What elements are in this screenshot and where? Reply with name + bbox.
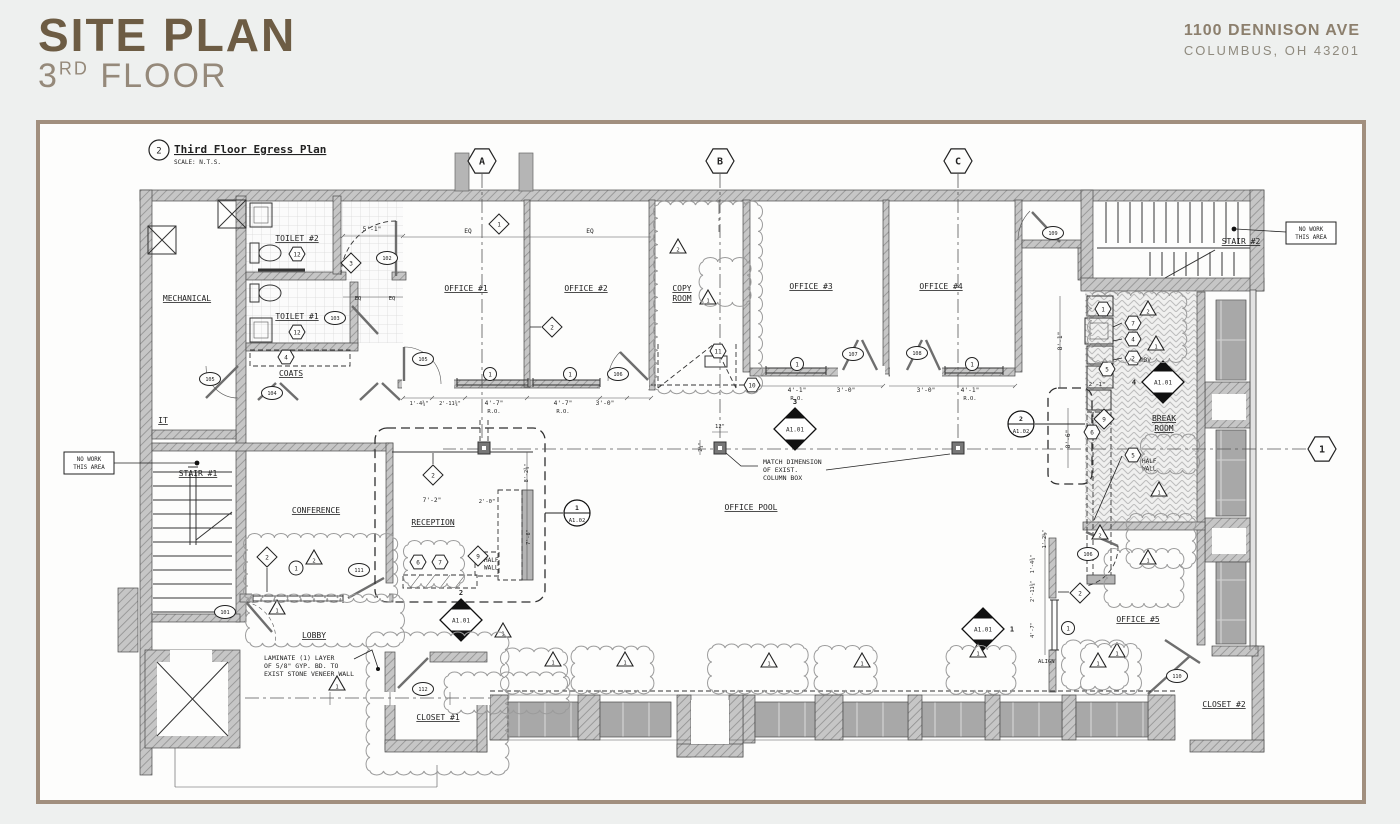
window-tag-number: 1 (795, 361, 799, 368)
keynote-number: 5 (1131, 453, 1135, 460)
room-label: BREAK (1152, 414, 1176, 423)
titleblock-number: 2 (156, 147, 161, 157)
dimension-text: R.O. (963, 396, 976, 402)
dimension-text: 2'-0" (479, 499, 496, 505)
section-marker-number: 4 (1132, 379, 1136, 387)
door-tag-number: 112 (418, 687, 427, 693)
revision-cloud (500, 648, 567, 694)
keynote-number: 6 (416, 560, 420, 567)
column-box-center (718, 446, 722, 450)
revision-number: 1 (1146, 559, 1149, 565)
revision-number: 1 (1154, 345, 1157, 351)
section-marker-sheet: A1.01 (786, 427, 804, 434)
revision-number: 1 (275, 609, 278, 615)
dimension-text: 4'-7" (1030, 622, 1036, 638)
keynote-number: 4 (284, 355, 288, 362)
door-tag-number: 107 (848, 352, 857, 358)
room-label: STAIR #2 (1222, 237, 1261, 246)
column-box-center (956, 446, 960, 450)
address-line2: COLUMBUS, OH 43201 (1184, 43, 1360, 58)
dimension-text: 8'-2¾" (524, 464, 530, 483)
room-label: OFFICE #4 (919, 282, 963, 291)
dimension-text: 7'-6" (526, 529, 532, 545)
revision-number: 1 (1157, 491, 1160, 497)
revision-number: 2 (676, 248, 679, 254)
room-label: COPY (672, 284, 691, 293)
keynote-number: 9 (1102, 417, 1106, 424)
keynote-number: 1 (294, 566, 298, 573)
revision-number: 1 (1115, 652, 1118, 658)
leader-line (726, 453, 758, 466)
keynote-number: 7 (438, 560, 442, 567)
dimension-text: R.O. (487, 409, 500, 415)
keynote-number: 12 (293, 330, 301, 337)
room-label: TOILET #2 (275, 234, 319, 243)
keynote-number: 7 (1131, 321, 1135, 328)
revision-number: 1 (860, 662, 863, 668)
address-line1: 1100 DENNISON AVE (1184, 22, 1360, 40)
column-box-center (482, 446, 486, 450)
dimension-text: 3'-0" (596, 400, 615, 407)
sheet-header: SITE PLAN 3RD FLOOR (38, 12, 296, 95)
leader-dot (195, 461, 200, 466)
detail-marker-sheet: A1.02 (1013, 429, 1030, 435)
room-label: ROOM (672, 294, 691, 303)
dimension-text: 1'-4¾" (410, 401, 429, 407)
drawing-panel: 2Third Floor Egress PlanSCALE: N.T.S.MEC… (36, 120, 1366, 804)
revision-number: 1 (551, 661, 554, 667)
revision-cloud (814, 646, 877, 695)
revision-number: 1 (335, 685, 338, 691)
note-text: OF 5/8" GYP. BD. TO (264, 662, 338, 670)
keynote-number: 4 (1131, 337, 1135, 344)
section-marker-sheet: A1.01 (1154, 380, 1172, 387)
sheet-title: SITE PLAN (38, 12, 296, 58)
dimension-text: 2'-1" (1089, 382, 1106, 388)
room-label: MECHANICAL (163, 294, 211, 303)
detail-marker-number: 2 (1019, 415, 1023, 423)
no-work-text: NO WORK (77, 457, 102, 463)
section-marker-sheet: A1.01 (974, 627, 992, 634)
door-tag-number: 109 (1048, 231, 1057, 237)
dimension-text: EQ (389, 296, 396, 302)
dimension-text: 2¼" (698, 442, 704, 451)
note-text: EXIST STONE VENEER WALL (264, 670, 354, 678)
revision-number: 2 (1098, 534, 1101, 540)
grid-marker-label: B (717, 157, 723, 168)
note-text: WALL (484, 565, 499, 572)
dimension-text: 1'-4¾" (1030, 555, 1036, 574)
dimension-text: 8'-1" (1057, 332, 1064, 351)
room-label: OFFICE #2 (564, 284, 608, 293)
door-tag-number: 101 (220, 610, 229, 616)
room-label: RECEPTION (411, 518, 455, 527)
keynote-number: 3 (349, 261, 353, 268)
no-work-text: THIS AREA (1295, 235, 1327, 241)
section-marker-arrow (785, 440, 806, 451)
dimension-text: 2'-11¾" (1030, 580, 1036, 602)
window-tag-number: 1 (1066, 625, 1070, 632)
door-tag-number: 103 (330, 316, 339, 322)
section-marker-arrow (451, 599, 472, 610)
note-text: ALIGN (1038, 659, 1055, 665)
no-work-text: THIS AREA (73, 465, 105, 471)
dimension-text: 4'-1" (788, 387, 807, 394)
revision-number: 1 (976, 652, 979, 658)
door-tag-number: 106 (613, 372, 622, 378)
dimension-text: 1'-2½" (1041, 530, 1048, 549)
door-tag-number: 102 (382, 256, 391, 262)
note-text: OF EXIST. (763, 466, 798, 474)
room-label: OFFICE #1 (444, 284, 488, 293)
dimension-text: R.O. (556, 409, 569, 415)
dimension-text: 4'-7" (554, 400, 573, 407)
revision-cloud (571, 646, 654, 694)
dimension-text: 7'-2" (423, 497, 442, 504)
door-tag-number: 110 (1172, 674, 1181, 680)
dimension-text: 2'-11¾" (439, 401, 461, 407)
leader-dot (1232, 227, 1237, 232)
leader-line (826, 454, 950, 470)
room-label: TOILET #1 (275, 312, 319, 321)
window-tag-number: 1 (568, 371, 572, 378)
revision-cloud (1081, 644, 1142, 695)
keynote-number: 2 (265, 555, 269, 562)
note-text: WALL (1142, 466, 1157, 473)
note-text: HALF (1142, 458, 1157, 465)
detail-marker-sheet: A1.02 (569, 518, 586, 524)
room-label: STAIR #1 (179, 469, 218, 478)
revision-number: 1 (623, 661, 626, 667)
room-label: CLOSET #1 (416, 713, 460, 722)
note-text: LAMINATE (1) LAYER (264, 654, 335, 662)
titleblock-title: Third Floor Egress Plan (174, 143, 326, 156)
room-label: COATS (279, 369, 303, 378)
revision-number: 1 (1096, 662, 1099, 668)
door-tag-number: 111 (354, 568, 363, 574)
room-label: CONFERENCE (292, 506, 340, 515)
section-marker-number: 1 (1010, 626, 1014, 634)
keynote-number: 5 (1105, 367, 1109, 374)
revision-number: 2 (312, 559, 315, 565)
door-tag-number: 105 (418, 357, 427, 363)
grid-marker-label: 1 (1319, 445, 1325, 456)
floor-plan-svg: 2Third Floor Egress PlanSCALE: N.T.S.MEC… (40, 124, 1362, 800)
dimension-text: EQ (355, 296, 362, 302)
keynote-number: 1 (497, 222, 501, 229)
room-label: OFFICE #5 (1116, 615, 1160, 624)
dimension-text: EQ (586, 228, 594, 235)
revision-number: 1 (767, 662, 770, 668)
revision-number: 1 (706, 299, 709, 305)
keynote-number: 11 (714, 349, 722, 356)
keynote-number: 12 (293, 252, 301, 259)
room-label: LOBBY (302, 631, 326, 640)
section-marker-arrow (973, 608, 994, 619)
leader-dot (376, 667, 380, 671)
keynote-number: 9 (476, 554, 480, 561)
room-label: OFFICE #3 (789, 282, 833, 291)
note-text: COLUMN BOX (763, 474, 802, 482)
project-address: 1100 DENNISON AVE COLUMBUS, OH 43201 (1184, 22, 1360, 58)
revision-number: 2 (1146, 310, 1149, 316)
door-tag-number: 108 (912, 351, 921, 357)
keynote-number: 10 (748, 383, 756, 390)
keynote-number: 1 (1101, 307, 1105, 314)
room-label: IT (158, 416, 168, 425)
door-tag-number: 104 (267, 391, 276, 397)
grid-marker-label: C (955, 157, 961, 168)
window-tag-number: 1 (970, 361, 974, 368)
note-text: MATCH DIMENSION (763, 458, 822, 466)
no-work-text: NO WORK (1299, 227, 1324, 233)
dimension-text: 3'-0" (917, 387, 936, 394)
sheet-subtitle: 3RD FLOOR (38, 58, 296, 95)
dimension-text: 4'-1" (961, 387, 980, 394)
keynote-number: 2 (550, 325, 554, 332)
dimension-text: EQ (464, 228, 472, 235)
section-marker-arrow (785, 408, 806, 419)
room-label: CLOSET #2 (1202, 700, 1246, 709)
dimension-text: 8'-6" (1065, 430, 1072, 449)
keynote-number: 6 (1090, 430, 1094, 437)
window-tag-number: 1 (488, 371, 492, 378)
room-label: ROOM (1154, 424, 1173, 433)
section-marker-number: 2 (459, 589, 463, 597)
dimension-text: 3'-0" (837, 387, 856, 394)
detail-marker-number: 1 (575, 504, 579, 512)
keynote-number: 2 (431, 473, 435, 480)
section-marker-sheet: A1.01 (452, 618, 470, 625)
dimension-text: 4'-7" (485, 400, 504, 407)
room-label: OFFICE POOL (725, 503, 778, 512)
dimension-text: 5'-1" (363, 226, 382, 233)
keynote-number: 2 (1078, 591, 1082, 598)
grid-marker-label: A (479, 157, 485, 168)
section-marker-number: 3 (793, 398, 797, 406)
door-tag-number: 105 (205, 377, 214, 383)
door-tag-number: 106 (1083, 552, 1092, 558)
revision-cloud (708, 644, 809, 694)
titleblock-scale: SCALE: N.T.S. (174, 159, 221, 166)
